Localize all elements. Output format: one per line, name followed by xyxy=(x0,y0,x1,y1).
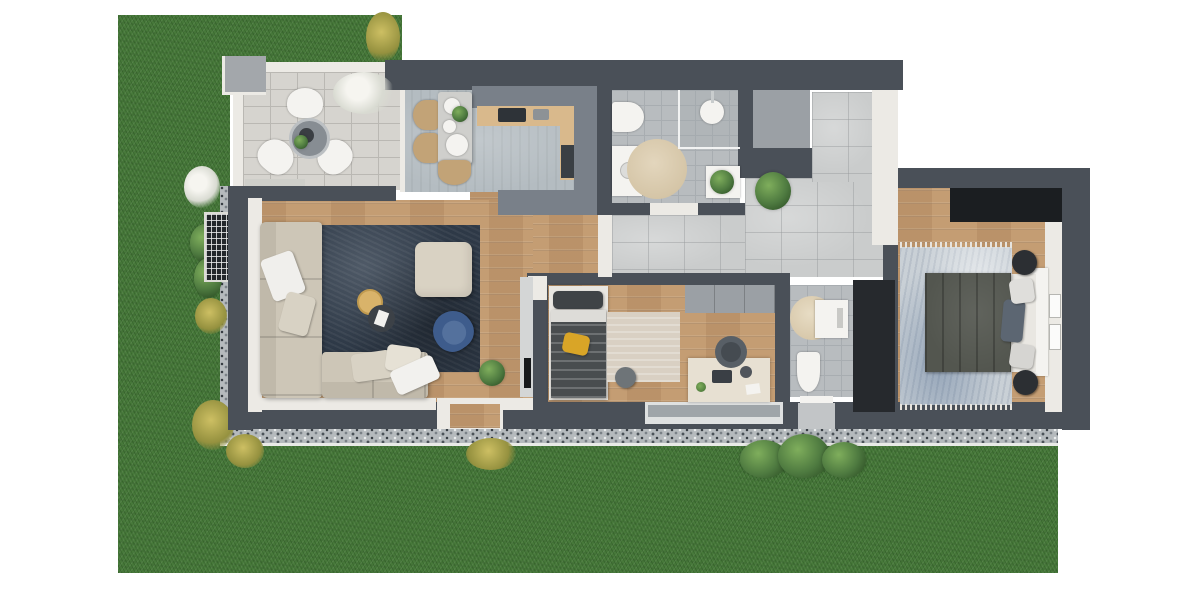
entry-pad xyxy=(798,403,835,429)
kids-closet xyxy=(685,285,775,313)
garden-door-step xyxy=(450,404,500,428)
kitchen-hall-trim xyxy=(598,215,612,277)
hallway-floor-main xyxy=(612,215,748,277)
desk-papers xyxy=(745,383,760,395)
wc-toilet xyxy=(797,352,820,392)
plant-top-edge xyxy=(366,12,400,62)
floor-plan-scene xyxy=(0,0,1200,600)
office-chair xyxy=(715,336,747,368)
living-sill-bottom xyxy=(248,398,436,410)
gravel-curb xyxy=(220,443,1058,446)
desk-plant xyxy=(696,382,706,392)
shower-head xyxy=(700,100,724,124)
living-ottoman xyxy=(415,242,472,297)
wc-faucet xyxy=(837,308,843,328)
kitchen-cabinet-dark xyxy=(561,145,574,178)
flower-shrub xyxy=(184,166,220,208)
storage-block xyxy=(853,280,895,412)
bedroom-rug-fringe-top xyxy=(900,242,1012,248)
living-plant xyxy=(479,360,505,386)
living-sill-bottom-2 xyxy=(500,398,533,410)
shower-glass-2 xyxy=(678,147,740,149)
office-chair-seat xyxy=(721,342,741,362)
lawn-bottom xyxy=(118,445,1058,573)
dining-chair-3 xyxy=(438,160,471,185)
tv-screen xyxy=(524,358,531,388)
bedroom-door-open xyxy=(872,90,898,245)
armchair-cushion xyxy=(437,316,470,349)
desk-lamp xyxy=(740,366,752,378)
shrub-bottom-group xyxy=(740,434,866,480)
bedroom-wardrobe xyxy=(950,188,1062,222)
bed-pillow-slate xyxy=(1000,299,1026,343)
kids-bed-fold xyxy=(551,310,606,322)
kitchen-counter-right xyxy=(574,106,597,192)
bath-toilet xyxy=(612,102,644,132)
kids-bed-pillow xyxy=(553,291,603,309)
kids-pouf xyxy=(615,367,636,388)
wall-bedroom-top xyxy=(893,168,1090,188)
dining-plate-2 xyxy=(443,120,456,133)
kitchen-sideboard xyxy=(498,190,597,215)
coffee-table-book xyxy=(374,310,389,328)
nightstand-bottom xyxy=(1013,370,1038,395)
bed-pillow-light-2 xyxy=(1008,342,1035,369)
bed-pillow-light-1 xyxy=(1008,277,1035,304)
wall-kids-wc xyxy=(775,273,790,412)
tuft-bottom-1 xyxy=(226,434,264,468)
kitchen-counter-back xyxy=(472,86,597,108)
terrace-glass-divider xyxy=(400,88,405,192)
nightstand-top xyxy=(1012,250,1037,275)
bedroom-rug-fringe-bottom xyxy=(900,404,1012,410)
cooktop xyxy=(498,108,526,122)
coffee-table-dark xyxy=(368,305,395,332)
utility-shaft xyxy=(750,85,810,150)
bed-duvet xyxy=(925,273,1011,372)
wall-frame-2 xyxy=(1049,324,1061,350)
tuft-bottom-2 xyxy=(466,438,516,470)
terrace-table-plant xyxy=(294,135,308,149)
wall-top xyxy=(385,60,903,90)
bath-cabinet-plant xyxy=(710,170,734,194)
dining-chair-2 xyxy=(413,133,439,163)
shrub-blob-3 xyxy=(822,442,866,478)
dining-table-plant xyxy=(452,106,468,122)
terrace-pillar xyxy=(222,56,266,95)
wall-kitchen-bath xyxy=(597,62,612,215)
wall-frame-1 xyxy=(1049,294,1061,318)
wc-sink-cabinet xyxy=(815,300,848,338)
hallway-plant xyxy=(755,172,791,210)
terrace-flower-bush xyxy=(333,72,395,114)
dining-plate-3 xyxy=(446,134,468,156)
shower-arm xyxy=(711,91,714,103)
desk-laptop xyxy=(712,370,732,383)
kitchen-sink xyxy=(533,109,549,120)
dining-chair-1 xyxy=(413,100,439,130)
bath-door-opening xyxy=(650,203,698,215)
terrace-chair-top xyxy=(287,88,323,118)
wall-right xyxy=(1062,168,1090,430)
wall-kids-top xyxy=(527,273,790,285)
shower-glass xyxy=(678,90,680,148)
kids-window-glass xyxy=(648,405,780,417)
tuft-left-1 xyxy=(195,298,227,334)
terrace-table xyxy=(289,118,330,159)
